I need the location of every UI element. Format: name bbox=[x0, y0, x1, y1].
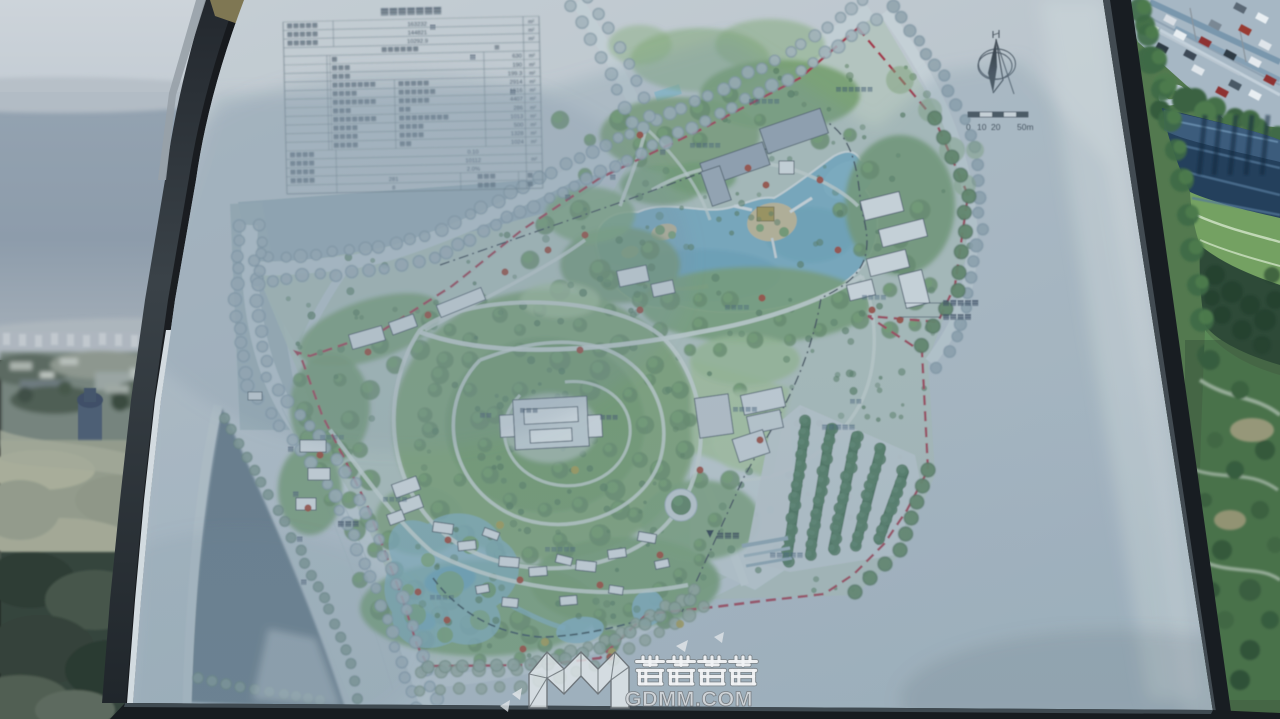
svg-text:GDMM.COM: GDMM.COM bbox=[625, 687, 753, 711]
